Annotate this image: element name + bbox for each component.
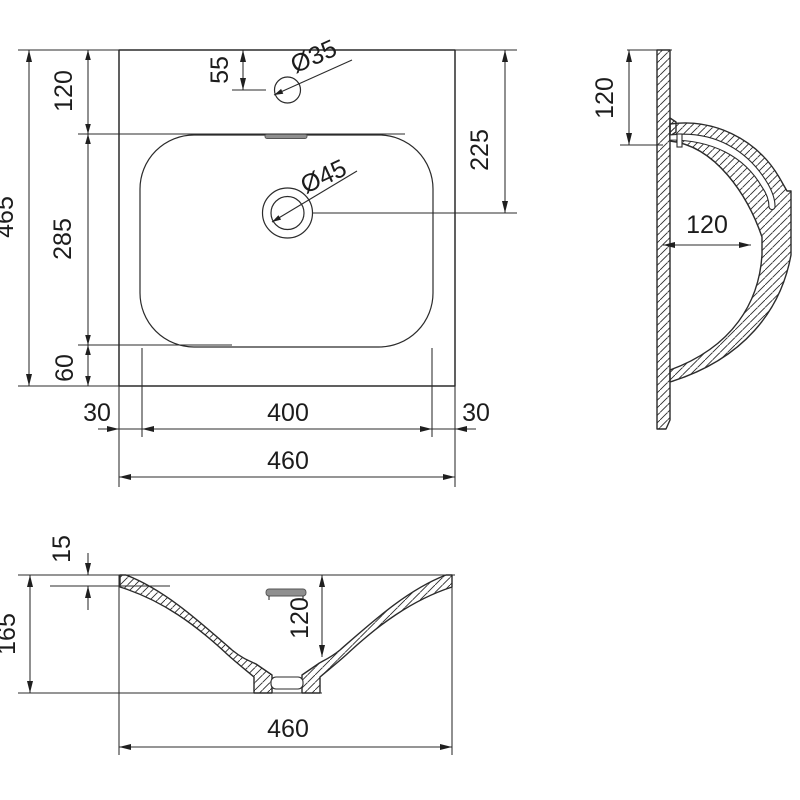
dim-label-120-side-vertical: 120: [591, 77, 619, 119]
plan-faucet-hole: [275, 77, 301, 103]
dim-label-165: 165: [0, 613, 21, 655]
dim-plan-vertical-chain: 120 285 60: [49, 50, 405, 386]
front-section-view: 15 165 120 460: [0, 535, 455, 755]
dim-front-rim-thickness: 15: [48, 535, 88, 610]
dim-label-120-front: 120: [286, 597, 314, 639]
side-wall-section: [657, 50, 670, 429]
side-rim-and-bowl-section: [670, 123, 791, 382]
technical-drawing-page: 465 120 285 60 55 Ø35: [0, 0, 800, 800]
dim-label-55: 55: [206, 56, 234, 84]
dim-plan-faucet-offset: 55: [206, 50, 266, 90]
front-bowl-section-left: [120, 575, 272, 693]
dim-label-30-left: 30: [83, 399, 111, 427]
front-drain-slot: [271, 677, 303, 689]
side-overflow-notch: [677, 134, 682, 147]
dim-label-225: 225: [466, 129, 494, 171]
dim-label-285: 285: [49, 218, 77, 260]
dim-label-60: 60: [51, 354, 79, 382]
dim-label-dia45: Ø45: [296, 154, 351, 199]
dim-label-30-right: 30: [462, 399, 490, 427]
dim-front-depth-total: 165: [0, 575, 30, 693]
leader-faucet-hole: Ø35: [274, 34, 352, 95]
dim-label-465: 465: [0, 196, 19, 238]
side-section-view: 120 120: [591, 50, 791, 429]
dim-label-dia35: Ø35: [286, 34, 341, 79]
dim-label-400: 400: [267, 399, 309, 427]
dim-label-120-top: 120: [50, 70, 78, 112]
plan-view: 465 120 285 60 55 Ø35: [0, 34, 517, 487]
dim-label-460-plan: 460: [267, 447, 309, 475]
dim-plan-width-total: 460: [119, 447, 455, 477]
front-bowl-section-right: [302, 575, 452, 693]
dim-plan-top-to-drain: 225: [313, 50, 517, 213]
dim-side-rim-depth: 120: [663, 211, 751, 245]
plan-outer-outline: [119, 50, 455, 386]
technical-drawing-canvas: 465 120 285 60 55 Ø35: [0, 0, 800, 800]
front-overflow-slot: [266, 589, 306, 596]
plan-overflow-slot: [265, 134, 307, 139]
dim-front-bowl-depth: 120: [286, 575, 322, 657]
plan-basin-outline: [140, 135, 433, 347]
dim-label-15: 15: [48, 535, 76, 563]
dim-label-120-side-horizontal: 120: [686, 211, 728, 239]
dim-label-460-front: 460: [267, 715, 309, 743]
